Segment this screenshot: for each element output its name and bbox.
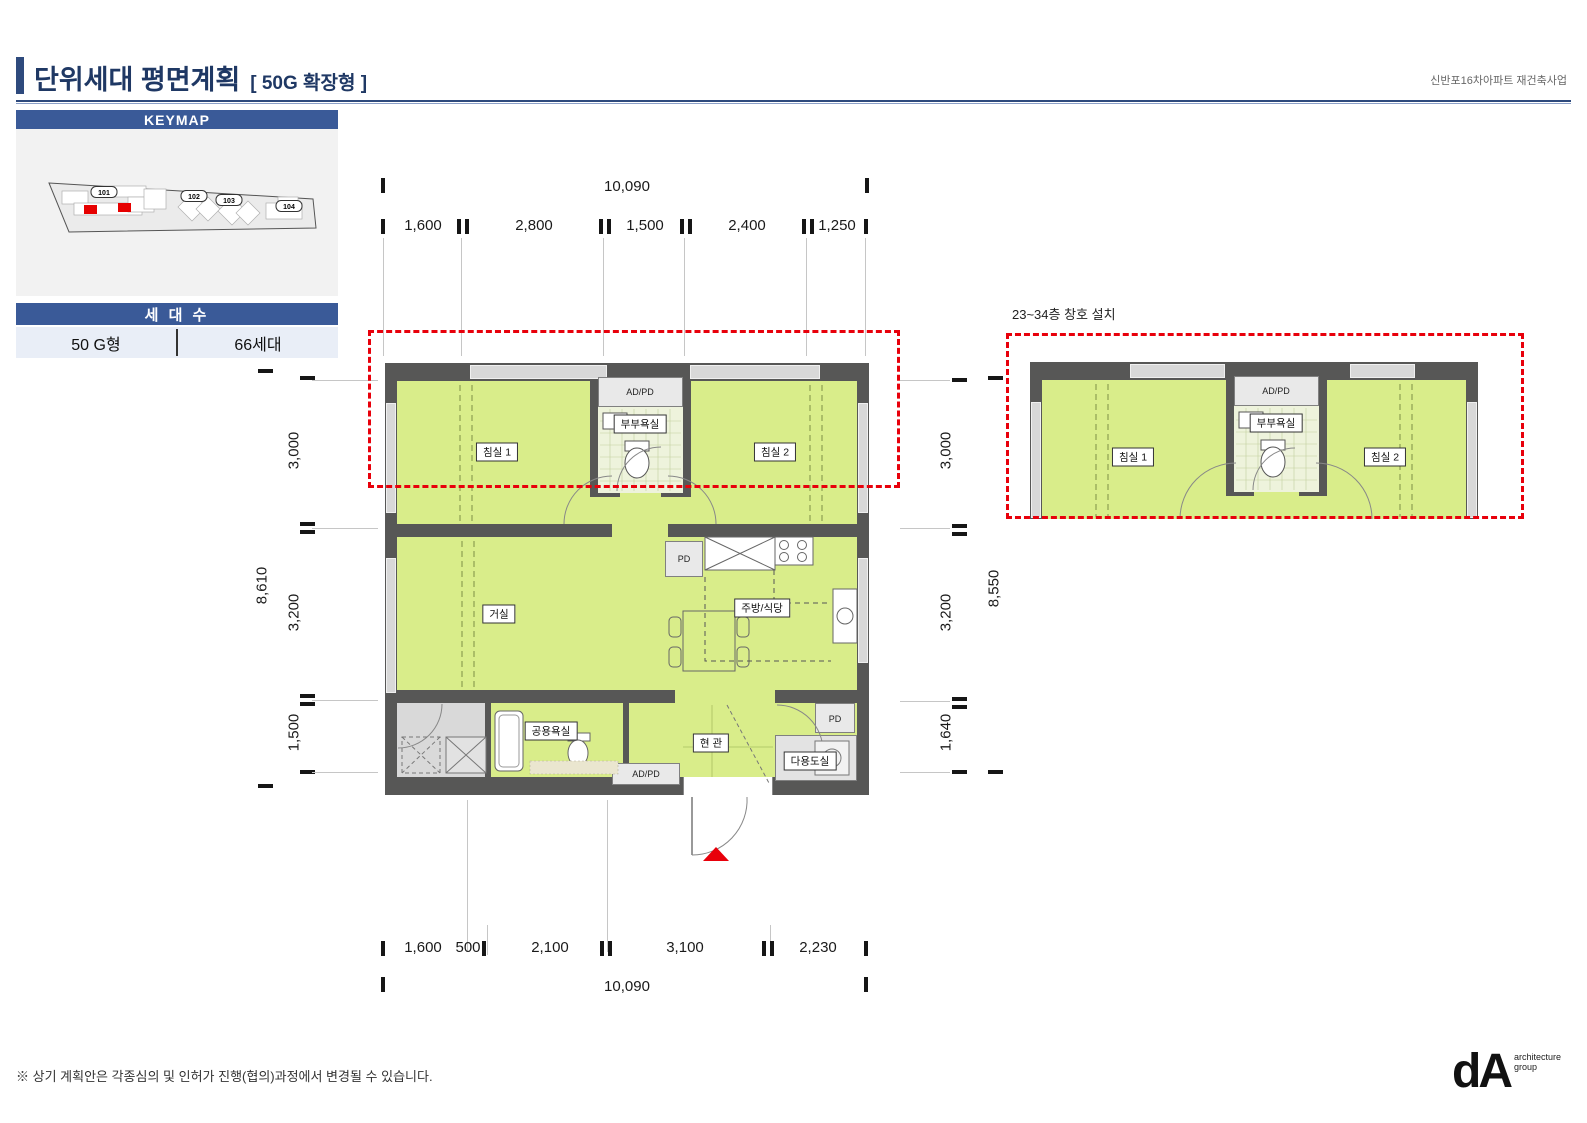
dim-tick (381, 941, 385, 956)
dim-left-total: 8,610 (254, 556, 271, 616)
dim-tick (865, 178, 869, 193)
company-logo-sub: architecture group (1514, 1052, 1561, 1073)
counter-dashed (705, 577, 831, 661)
chair (669, 647, 681, 667)
dim-tick (952, 524, 967, 528)
dim-left-seg: 3,200 (286, 583, 303, 643)
page-title-main: 단위세대 평면계획 (34, 65, 240, 95)
pd-label: PD (829, 714, 842, 724)
dim-tick (688, 219, 692, 234)
units-header: 세 대 수 (16, 303, 338, 325)
project-name: 신반포16차아파트 재건축사업 (1430, 72, 1567, 88)
page: 단위세대 평면계획[ 50G 확장형 ] 신반포16차아파트 재건축사업 KEY… (0, 0, 1587, 1123)
dim-top-seg: 1,500 (605, 217, 685, 234)
chair (737, 617, 749, 637)
kitchen-label: 주방/식당 (734, 599, 790, 618)
dim-tick (300, 530, 315, 534)
logo-line1: architecture (1514, 1052, 1561, 1062)
disclaimer: ※ 상기 계획안은 각종심의 및 인허가 진행(협의)과정에서 변경될 수 있습… (16, 1066, 433, 1085)
common-bath-label: 공용욕실 (525, 722, 578, 741)
living-label: 거실 (482, 605, 515, 624)
extension-highlight-right (1006, 333, 1524, 519)
entry-diagonal (727, 705, 769, 783)
dim-left-seg: 3,000 (286, 421, 303, 481)
chair (669, 617, 681, 637)
dim-right-seg: 3,000 (938, 421, 955, 481)
entrance-door (615, 795, 885, 870)
dim-top-seg: 1,600 (383, 217, 463, 234)
extension-line (467, 800, 468, 952)
building-label: 104 (283, 204, 295, 211)
entrance-arrow (703, 847, 729, 861)
extension-line (900, 528, 950, 529)
page-title: 단위세대 평면계획[ 50G 확장형 ] (34, 58, 367, 97)
dim-top-seg: 2,400 (707, 217, 787, 234)
page-title-sub: [ 50G 확장형 ] (250, 73, 367, 94)
dim-tick (258, 369, 273, 373)
dim-tick (762, 941, 766, 956)
dim-right-total: 8,550 (986, 559, 1003, 619)
dim-bottom-seg: 3,100 (650, 939, 720, 956)
dim-tick (608, 941, 612, 956)
extension-line (900, 772, 950, 773)
dim-bottom-seg: 2,230 (783, 939, 853, 956)
utility-label: 다용도실 (784, 752, 837, 771)
keymap-sketch: 101 102 103 104 (16, 129, 338, 296)
extension-line (312, 700, 378, 701)
right-plan-note: 23~34층 창호 설치 (1012, 304, 1116, 323)
dim-tick (952, 697, 967, 701)
dim-tick (952, 770, 967, 774)
dim-tick (600, 941, 604, 956)
extension-highlight-main (368, 330, 900, 488)
dining-table (683, 611, 735, 671)
dim-tick (988, 376, 1003, 380)
dim-bottom-total: 10,090 (567, 978, 687, 995)
header-rule (16, 100, 1571, 102)
adpd-label: AD/PD (632, 769, 660, 779)
dim-right-seg: 1,640 (938, 703, 955, 763)
dim-bottom-seg: 500 (433, 939, 503, 956)
units-row: 50 G형 66세대 (16, 327, 338, 358)
dim-top-total: 10,090 (567, 178, 687, 195)
dim-tick (864, 977, 868, 992)
company-logo: dA (1452, 1048, 1510, 1096)
header-rule-shadow (16, 103, 1571, 104)
extension-line (312, 772, 378, 773)
title-accent-bar (16, 57, 24, 94)
dim-tick (988, 770, 1003, 774)
building-label: 101 (98, 190, 110, 197)
dim-right-seg: 3,200 (938, 583, 955, 643)
dim-tick (952, 532, 967, 536)
extension-line (312, 528, 378, 529)
highlighted-unit (84, 205, 97, 214)
logo-line2: group (1514, 1062, 1561, 1072)
building-label: 103 (223, 198, 235, 205)
bath-dry-strip (530, 761, 618, 774)
dim-tick (599, 219, 603, 234)
extension-line (607, 800, 608, 952)
dim-tick (864, 941, 868, 956)
unit-count: 66세대 (178, 327, 338, 358)
dim-tick (770, 941, 774, 956)
unit-type: 50 G형 (16, 327, 176, 358)
dim-top-seg: 1,250 (797, 217, 877, 234)
dim-tick (381, 178, 385, 193)
dim-top-seg: 2,800 (494, 217, 574, 234)
pd-label: PD (678, 554, 691, 564)
keymap-body: 101 102 103 104 (16, 129, 338, 296)
keymap-header: KEYMAP (16, 110, 338, 129)
dim-tick (952, 378, 967, 382)
dim-tick (258, 784, 273, 788)
dim-tick (381, 977, 385, 992)
dim-left-seg: 1,500 (286, 703, 303, 763)
dim-tick (300, 694, 315, 698)
door-swing (398, 704, 442, 748)
dim-tick (300, 522, 315, 526)
highlighted-unit (118, 203, 131, 212)
entry-label: 현 관 (693, 734, 729, 753)
dim-tick (465, 219, 469, 234)
dim-bottom-seg: 2,100 (515, 939, 585, 956)
stove (775, 537, 813, 565)
chair (737, 647, 749, 667)
building-label: 102 (188, 194, 200, 201)
extension-line (900, 380, 950, 381)
